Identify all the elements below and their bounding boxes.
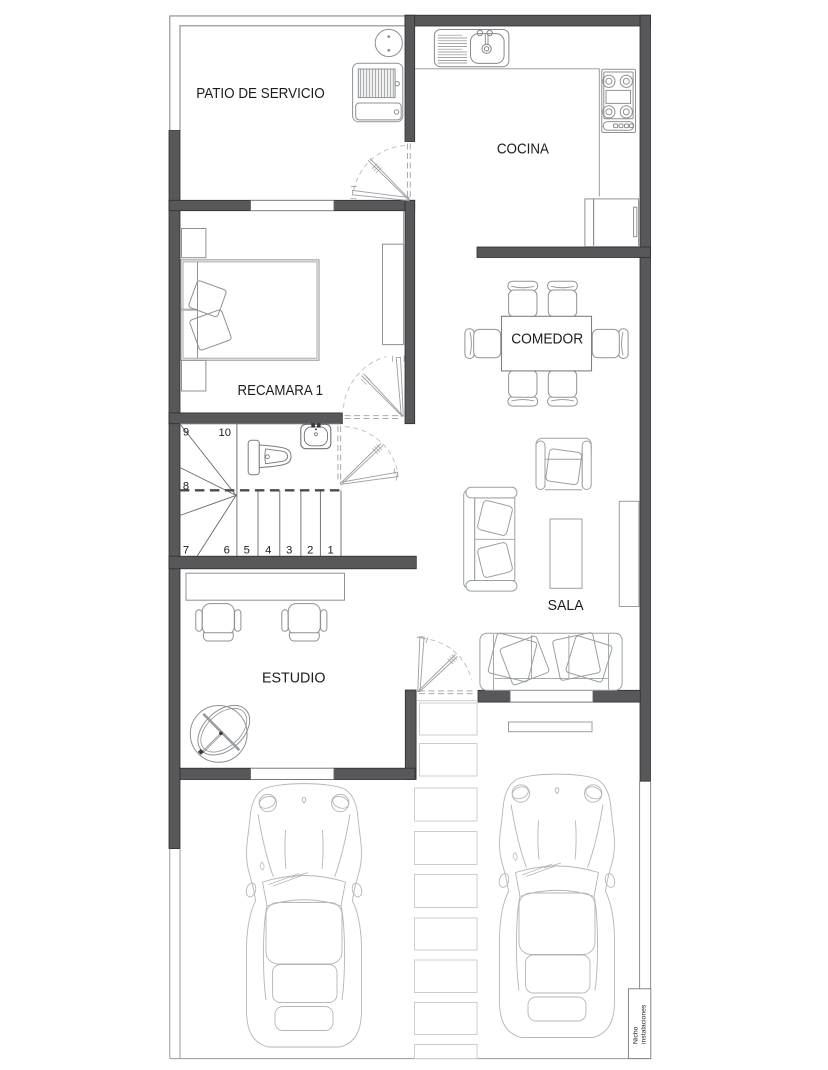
svg-text:10: 10 (218, 427, 230, 439)
svg-text:1: 1 (327, 544, 333, 556)
svg-text:RECAMARA 1: RECAMARA 1 (238, 382, 324, 399)
svg-text:7: 7 (183, 544, 189, 556)
svg-text:ESTUDIO: ESTUDIO (262, 670, 326, 687)
svg-text:6: 6 (224, 544, 230, 556)
svg-text:9: 9 (183, 426, 189, 438)
svg-text:SALA: SALA (548, 597, 584, 614)
svg-text:2: 2 (307, 544, 313, 556)
svg-text:5: 5 (244, 544, 250, 556)
svg-text:8: 8 (183, 480, 189, 492)
svg-text:instalaciones: instalaciones (641, 1004, 648, 1044)
svg-text:4: 4 (265, 544, 271, 556)
svg-text:Nicho: Nicho (633, 1026, 640, 1044)
svg-text:COMEDOR: COMEDOR (511, 330, 583, 347)
svg-text:3: 3 (286, 544, 292, 556)
svg-text:COCINA: COCINA (497, 141, 549, 158)
svg-text:PATIO DE SERVICIO: PATIO DE SERVICIO (196, 85, 325, 102)
